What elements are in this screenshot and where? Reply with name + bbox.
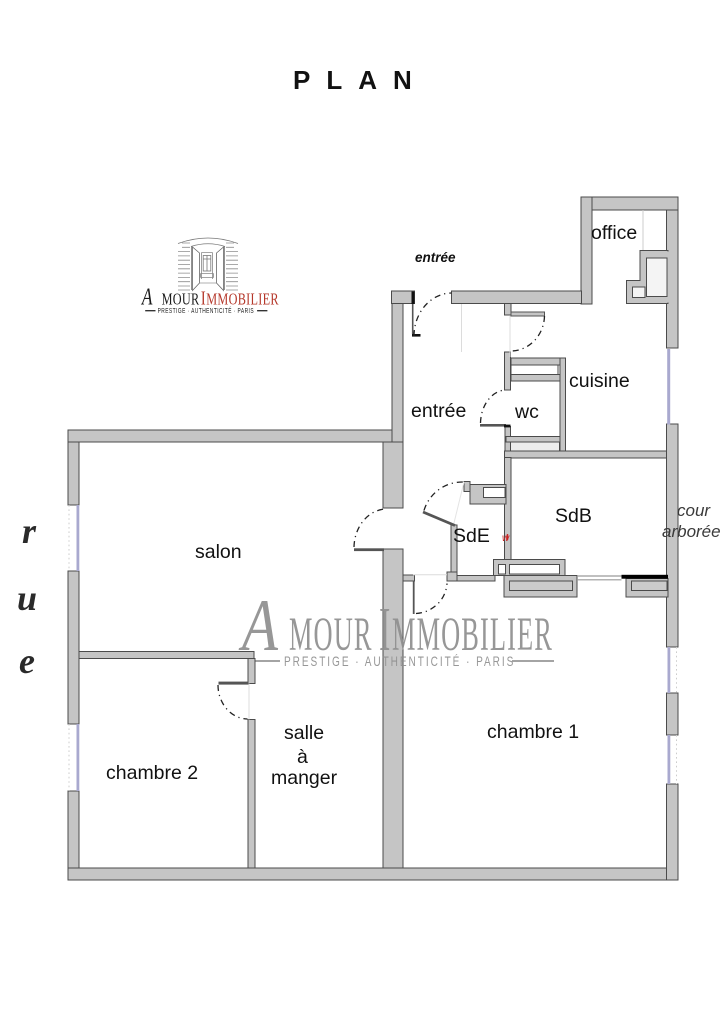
svg-text:r: r [22, 511, 37, 551]
svg-text:entrée: entrée [415, 250, 456, 265]
svg-text:SdE: SdE [453, 525, 490, 547]
svg-text:w: w [502, 533, 510, 544]
svg-text:u: u [17, 578, 37, 618]
svg-text:A: A [140, 283, 152, 311]
svg-text:salle: salle [284, 722, 324, 744]
svg-text:PRESTIGE · AUTHENTICITÉ · PARI: PRESTIGE · AUTHENTICITÉ · PARIS [284, 652, 515, 669]
svg-text:chambre 2: chambre 2 [106, 762, 198, 784]
svg-text:arborée: arborée [662, 522, 721, 541]
svg-text:PLAN: PLAN [293, 65, 428, 95]
svg-text:wc: wc [514, 401, 539, 423]
svg-text:à: à [297, 746, 308, 768]
svg-text:entrée: entrée [411, 400, 466, 422]
svg-text:A: A [238, 585, 279, 667]
svg-text:SdB: SdB [555, 505, 592, 527]
svg-text:PRESTIGE · AUTHENTICITÉ · PARI: PRESTIGE · AUTHENTICITÉ · PARIS [158, 305, 254, 316]
svg-text:chambre 1: chambre 1 [487, 721, 579, 743]
svg-text:manger: manger [271, 767, 338, 789]
svg-text:cour: cour [677, 501, 711, 520]
svg-text:cuisine: cuisine [569, 370, 630, 392]
svg-text:I: I [201, 286, 206, 309]
svg-text:office: office [591, 222, 637, 244]
svg-text:salon: salon [195, 541, 242, 563]
svg-text:e: e [19, 641, 35, 681]
